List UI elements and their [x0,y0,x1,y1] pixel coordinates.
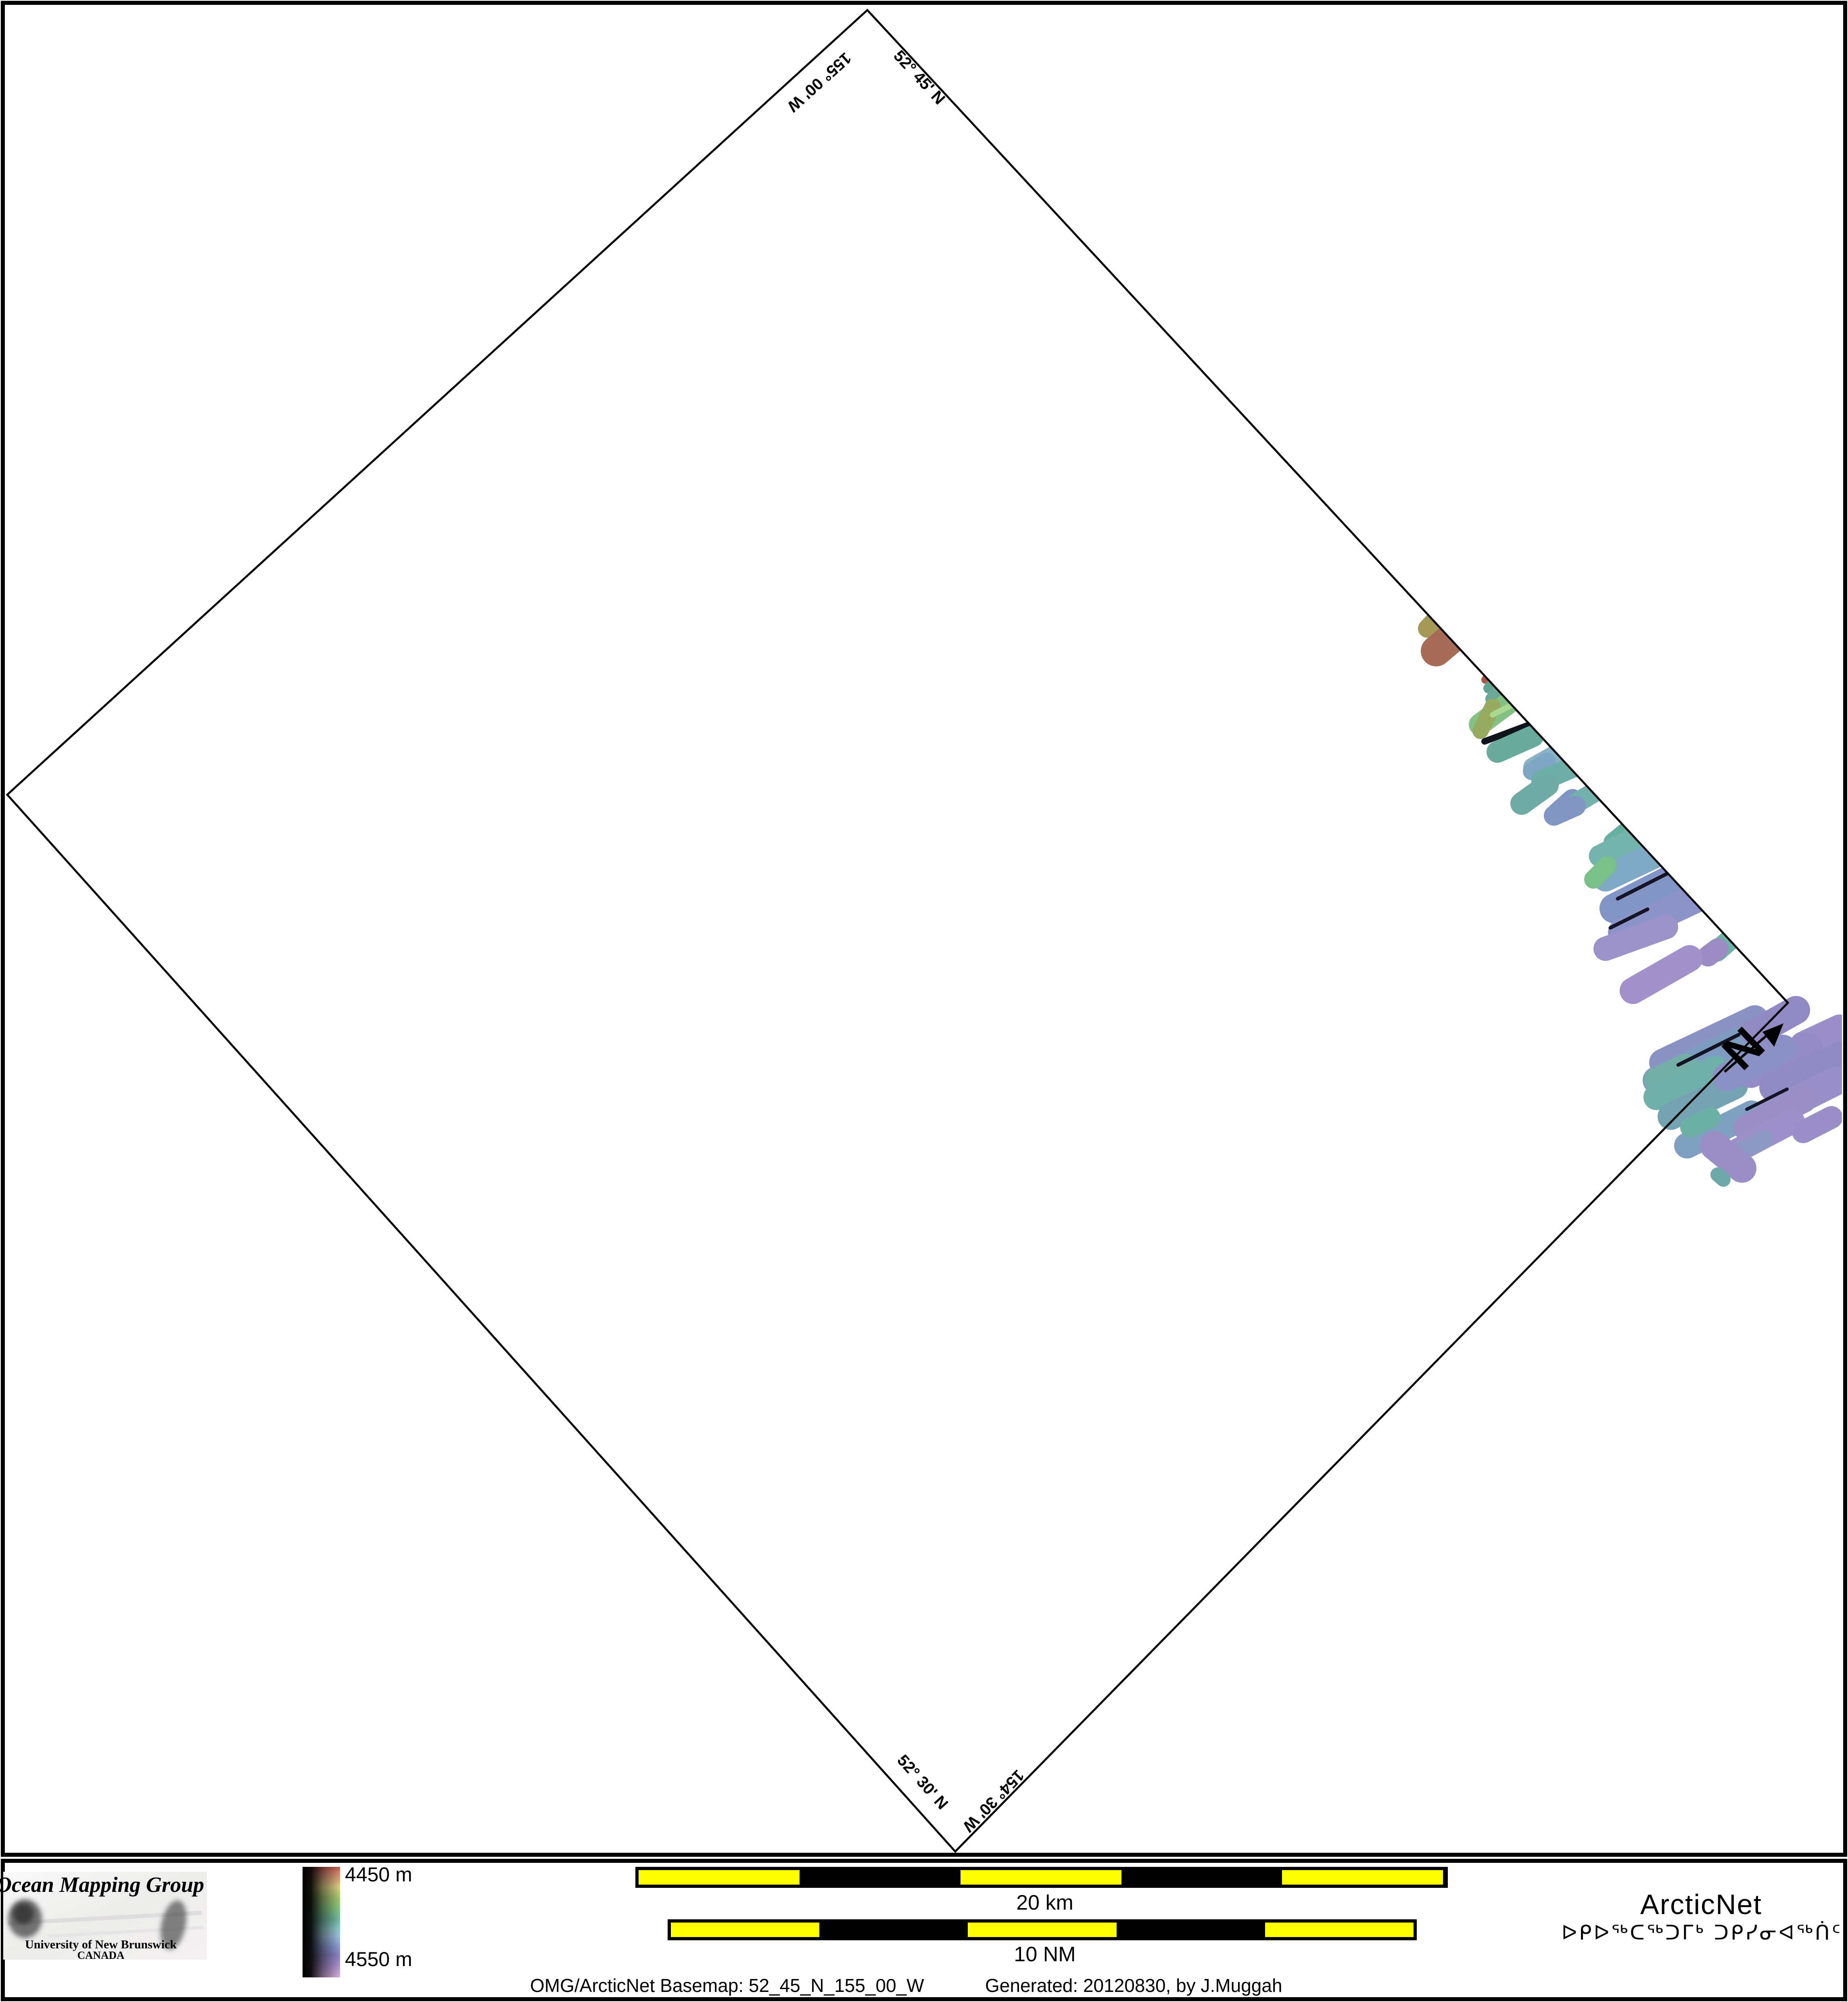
scalebar-nm-label: 10 NM [1014,1943,1075,1966]
omg-logo-country: CANADA [77,1949,125,1961]
map-frame [3,3,1845,1855]
omg-logo-title: Ocean Mapping Group [0,1873,204,1897]
scalebar-km-segment [639,1870,800,1885]
arcticnet-wordmark: ArcticNet [1640,1889,1762,1920]
scalebar-nm-segment [671,1923,819,1937]
bathymetry-swath [1803,1117,1831,1132]
depth-scale-top-label: 4450 m [345,1863,412,1886]
scalebar-nm-segment [1265,1923,1414,1937]
scalebar-nm-segment [968,1923,1117,1937]
omg-logo-sonar-blob-left-core [13,1903,34,1924]
scalebar-km-segment [961,1870,1121,1885]
caption-basemap: OMG/ArcticNet Basemap: 52_45_N_155_00_W [530,1975,924,1996]
bathymetry-swath [1690,1117,1710,1127]
bathymetry-swath [1554,806,1576,816]
bathymetry-swath [1714,1146,1742,1168]
bathymetry-swath [1593,866,1607,879]
bathymetry-swath [1718,1175,1723,1179]
depth-scale-shading [303,1867,340,1977]
bathymetry-swath [1480,707,1493,731]
scalebar-km-label: 20 km [1016,1891,1073,1914]
bathymetry-swath [1522,785,1547,804]
basemap-sheet: 52° 45' N 155° 00' W 52° 30' N 154° 30' … [0,0,1848,2002]
omg-logo: Ocean Mapping Group University of New Br… [0,1872,207,1961]
bathymetry-swath [1708,949,1718,956]
bathymetry-swath [1497,736,1533,752]
scalebar-km-segment [1282,1870,1443,1885]
depth-scale-bottom-label: 4550 m [345,1948,412,1971]
caption-generated: Generated: 20120830, by J.Muggah [985,1975,1282,1996]
arcticnet-syllabics: ᐅᑭᐅᖅᑕᖅᑐᒥᒃ ᑐᑭᓯᓂᐊᖅᑏᑦ [1562,1921,1843,1944]
